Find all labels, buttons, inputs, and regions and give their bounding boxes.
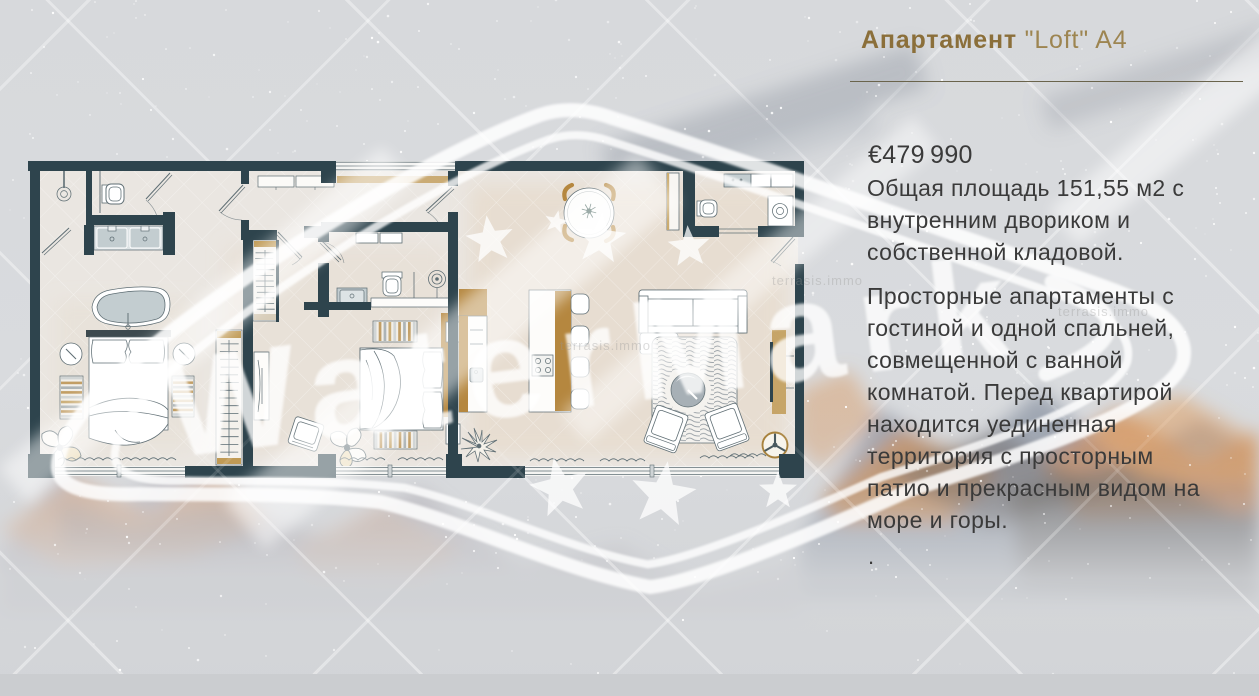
svg-text:terrasis.immo: terrasis.immo	[772, 273, 863, 288]
svg-text:terrasis.immo: terrasis.immo	[560, 338, 651, 353]
